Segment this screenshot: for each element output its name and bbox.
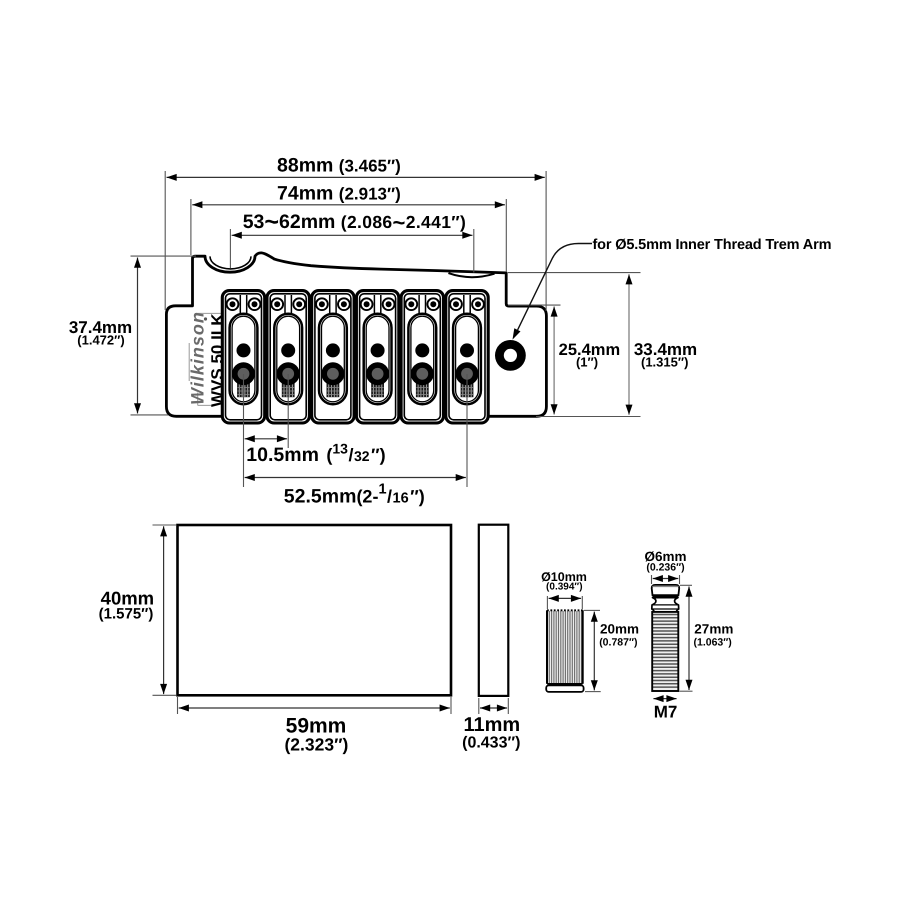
svg-text:M7: M7	[654, 703, 678, 722]
svg-text:(1.472″): (1.472″)	[77, 333, 124, 348]
svg-text:53~62mm (2.086~2.441″): 53~62mm (2.086~2.441″)	[243, 208, 467, 236]
svg-text:74mm (2.913″): 74mm (2.913″)	[277, 183, 401, 205]
svg-text:for Ø5.5mm Inner Thread Trem A: for Ø5.5mm Inner Thread Trem Arm	[593, 237, 832, 253]
svg-text:(1.315″): (1.315″)	[641, 355, 688, 370]
svg-text:(2.323″): (2.323″)	[284, 735, 348, 755]
svg-text:(0.787″): (0.787″)	[599, 637, 637, 649]
svg-text:27mm: 27mm	[694, 621, 733, 636]
svg-text:Wilkinson: Wilkinson	[188, 311, 208, 405]
svg-text:88mm (3.465″): 88mm (3.465″)	[277, 155, 401, 177]
svg-text:(1.063″): (1.063″)	[694, 637, 732, 649]
svg-text:(0.394″): (0.394″)	[546, 582, 582, 593]
svg-text:(1″): (1″)	[576, 355, 598, 370]
svg-text:11mm: 11mm	[463, 714, 520, 736]
svg-text:20mm: 20mm	[600, 621, 639, 636]
svg-text:(1.575″): (1.575″)	[99, 606, 154, 623]
svg-text:(0.236″): (0.236″)	[646, 562, 684, 574]
svg-text:(0.433″): (0.433″)	[462, 735, 520, 752]
